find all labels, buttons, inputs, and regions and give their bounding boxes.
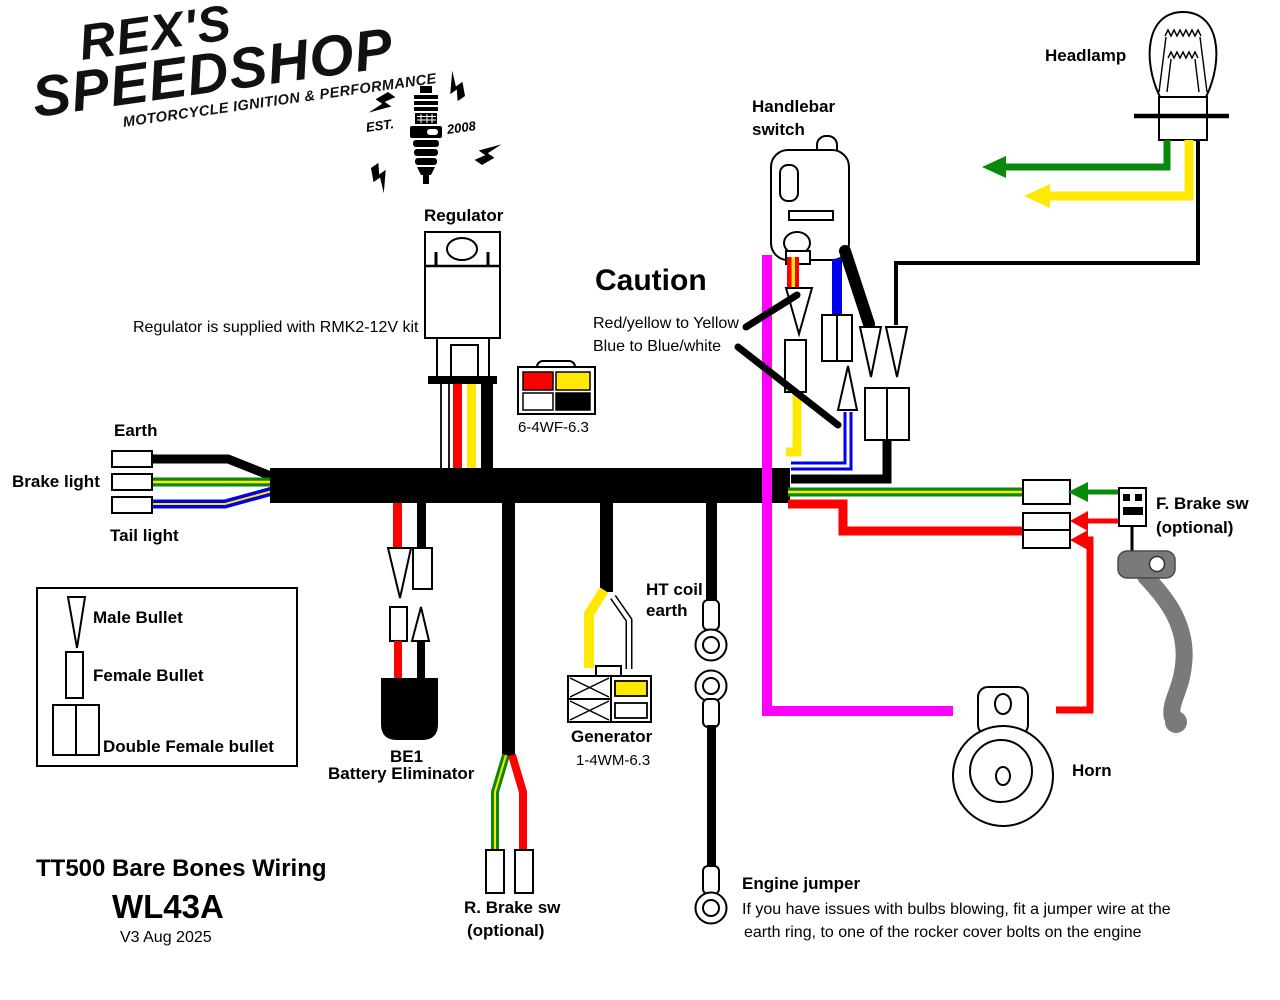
- regulator-label: Regulator: [424, 206, 503, 226]
- ht-coil-label-line2: earth: [646, 601, 688, 621]
- earth-label: Earth: [114, 421, 157, 441]
- double-female-bullet: [887, 388, 909, 440]
- caution-line1: Red/yellow to Yellow: [593, 315, 739, 333]
- double-female-bullet: [1023, 530, 1070, 548]
- rear-brake-switch-wires: [486, 503, 533, 893]
- female-bullet: [390, 607, 407, 641]
- regulator-note: Regulator is supplied with RMK2-12V kit: [133, 319, 418, 337]
- wiring-diagram: REX'S SPEEDSHOP MOTORCYCLE IGNITION & PE…: [0, 0, 1280, 1000]
- ht-coil-label-line1: HT coil: [646, 580, 703, 600]
- engine-jumper-note2: earth ring, to one of the rocker cover b…: [744, 924, 1142, 942]
- caution-line2: Blue to Blue/white: [593, 338, 721, 356]
- female-bullet: [515, 850, 533, 893]
- connector-1-4wm-label: 1-4WM-6.3: [576, 752, 650, 769]
- double-female-bullet: [865, 388, 887, 440]
- ht-coil-earth-wires: [696, 503, 727, 924]
- horn-symbol: [953, 687, 1053, 826]
- front-brake-label-line1: F. Brake sw: [1156, 494, 1249, 514]
- double-female-bullet: [837, 315, 852, 361]
- male-bullet: [886, 327, 907, 377]
- legend-double-female-label: Double Female bullet: [103, 737, 274, 757]
- double-female-bullet: [822, 315, 837, 361]
- double-female-bullet: [1023, 513, 1070, 530]
- rear-brake-label-line2: (optional): [467, 921, 544, 941]
- generator-symbol: [568, 503, 651, 722]
- tail-light-female-bullet: [112, 497, 152, 513]
- legend-female-label: Female Bullet: [93, 666, 204, 686]
- diagram-graphics: [0, 0, 1280, 1000]
- male-bullet: [412, 607, 429, 641]
- red-arrow-icon: [1070, 511, 1088, 531]
- headlamp-bulb: [1134, 12, 1229, 140]
- male-bullet: [838, 366, 857, 410]
- rear-loom-wires: [112, 451, 276, 513]
- front-brake-switch-symbol: [1119, 488, 1146, 554]
- double-female-bullet-icon: [76, 705, 99, 755]
- red-arrow-icon: [1070, 530, 1088, 550]
- female-bullet-icon: [66, 652, 83, 698]
- brake-light-female-bullet: [112, 474, 152, 490]
- engine-jumper-label: Engine jumper: [742, 874, 860, 894]
- earth-female-bullet: [112, 451, 152, 467]
- brake-light-label: Brake light: [12, 472, 100, 492]
- front-brake-horn-wires: [788, 480, 1121, 710]
- handlebar-switch-label-line1: Handlebar: [752, 97, 835, 117]
- female-bullet: [1023, 480, 1070, 504]
- female-bullet: [486, 850, 504, 893]
- double-female-bullet-icon: [53, 705, 76, 755]
- connector-6-4wf-label: 6-4WF-6.3: [518, 419, 589, 436]
- headlamp-label: Headlamp: [1045, 46, 1126, 66]
- male-bullet: [860, 327, 881, 377]
- handlebar-switch-symbol: [771, 136, 849, 264]
- battery-eliminator-symbol: [381, 503, 438, 740]
- male-bullet: [388, 548, 411, 598]
- brake-lever: [1118, 551, 1187, 733]
- engine-jumper-note1: If you have issues with bulbs blowing, f…: [742, 901, 1171, 919]
- caution-title: Caution: [595, 264, 707, 299]
- yellow-arrow-icon: [1024, 184, 1050, 208]
- diagram-version: V3 Aug 2025: [120, 929, 212, 947]
- tail-light-label: Tail light: [110, 526, 179, 546]
- horn-label: Horn: [1072, 761, 1112, 781]
- rear-brake-label-line1: R. Brake sw: [464, 898, 560, 918]
- be1-label-line2: Battery Eliminator: [328, 764, 474, 784]
- handlebar-switch-wires: [767, 251, 953, 711]
- female-bullet: [413, 548, 432, 589]
- handlebar-switch-label-line2: switch: [752, 120, 805, 140]
- legend-male-label: Male Bullet: [93, 608, 183, 628]
- green-arrow-icon: [982, 156, 1006, 178]
- front-brake-label-line2: (optional): [1156, 518, 1233, 538]
- headlamp-wires: [896, 140, 1198, 325]
- main-harness: [270, 468, 790, 503]
- generator-label: Generator: [571, 727, 652, 747]
- connector-6-4wf-symbol: [518, 361, 595, 414]
- diagram-code: WL43A: [112, 888, 224, 926]
- regulator-symbol: [425, 232, 500, 468]
- diagram-title: TT500 Bare Bones Wiring: [36, 855, 327, 883]
